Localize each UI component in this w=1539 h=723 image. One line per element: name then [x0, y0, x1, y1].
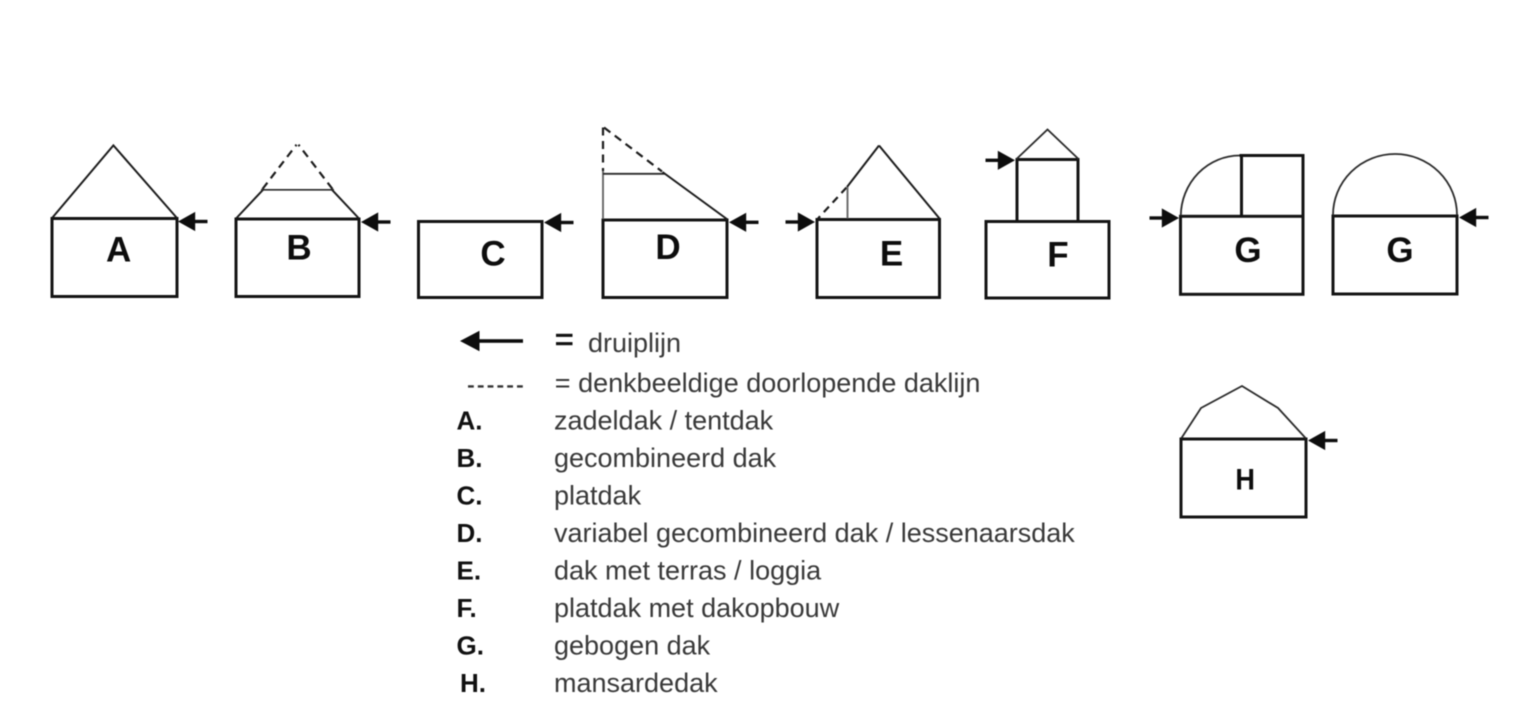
svg-text:dak met terras / loggia: dak met terras / loggia: [554, 556, 822, 586]
svg-text:C: C: [480, 234, 505, 273]
svg-text:G: G: [1386, 231, 1413, 270]
svg-text:C.: C.: [457, 481, 483, 511]
svg-text:platdak met dakopbouw: platdak met dakopbouw: [554, 593, 840, 623]
svg-text:gebogen dak: gebogen dak: [554, 631, 711, 661]
svg-text:gecombineerd dak: gecombineerd dak: [554, 443, 777, 473]
svg-text:F.: F.: [457, 593, 477, 623]
svg-text:H: H: [1235, 464, 1255, 497]
svg-text:F: F: [1047, 235, 1068, 274]
svg-text:E: E: [880, 235, 903, 274]
svg-text:G: G: [1234, 231, 1261, 270]
svg-text:B: B: [286, 229, 311, 268]
svg-text:D.: D.: [457, 518, 483, 548]
svg-text:mansardedak: mansardedak: [554, 668, 718, 698]
svg-text:platdak: platdak: [554, 481, 642, 511]
svg-text:= denkbeeldige doorlopende dak: = denkbeeldige doorlopende daklijn: [555, 368, 981, 398]
svg-text:A.: A.: [457, 406, 483, 436]
svg-text:zadeldak / tentdak: zadeldak / tentdak: [554, 406, 774, 436]
svg-text:E.: E.: [457, 556, 482, 586]
svg-text:G.: G.: [457, 631, 484, 661]
svg-text:variabel gecombineerd dak / le: variabel gecombineerd dak / lessenaarsda…: [554, 518, 1075, 548]
svg-text:D: D: [655, 228, 680, 267]
svg-text:B.: B.: [457, 443, 483, 473]
svg-text:A: A: [106, 230, 131, 269]
svg-text:druiplijn: druiplijn: [588, 328, 681, 358]
svg-text:H.: H.: [460, 668, 486, 698]
